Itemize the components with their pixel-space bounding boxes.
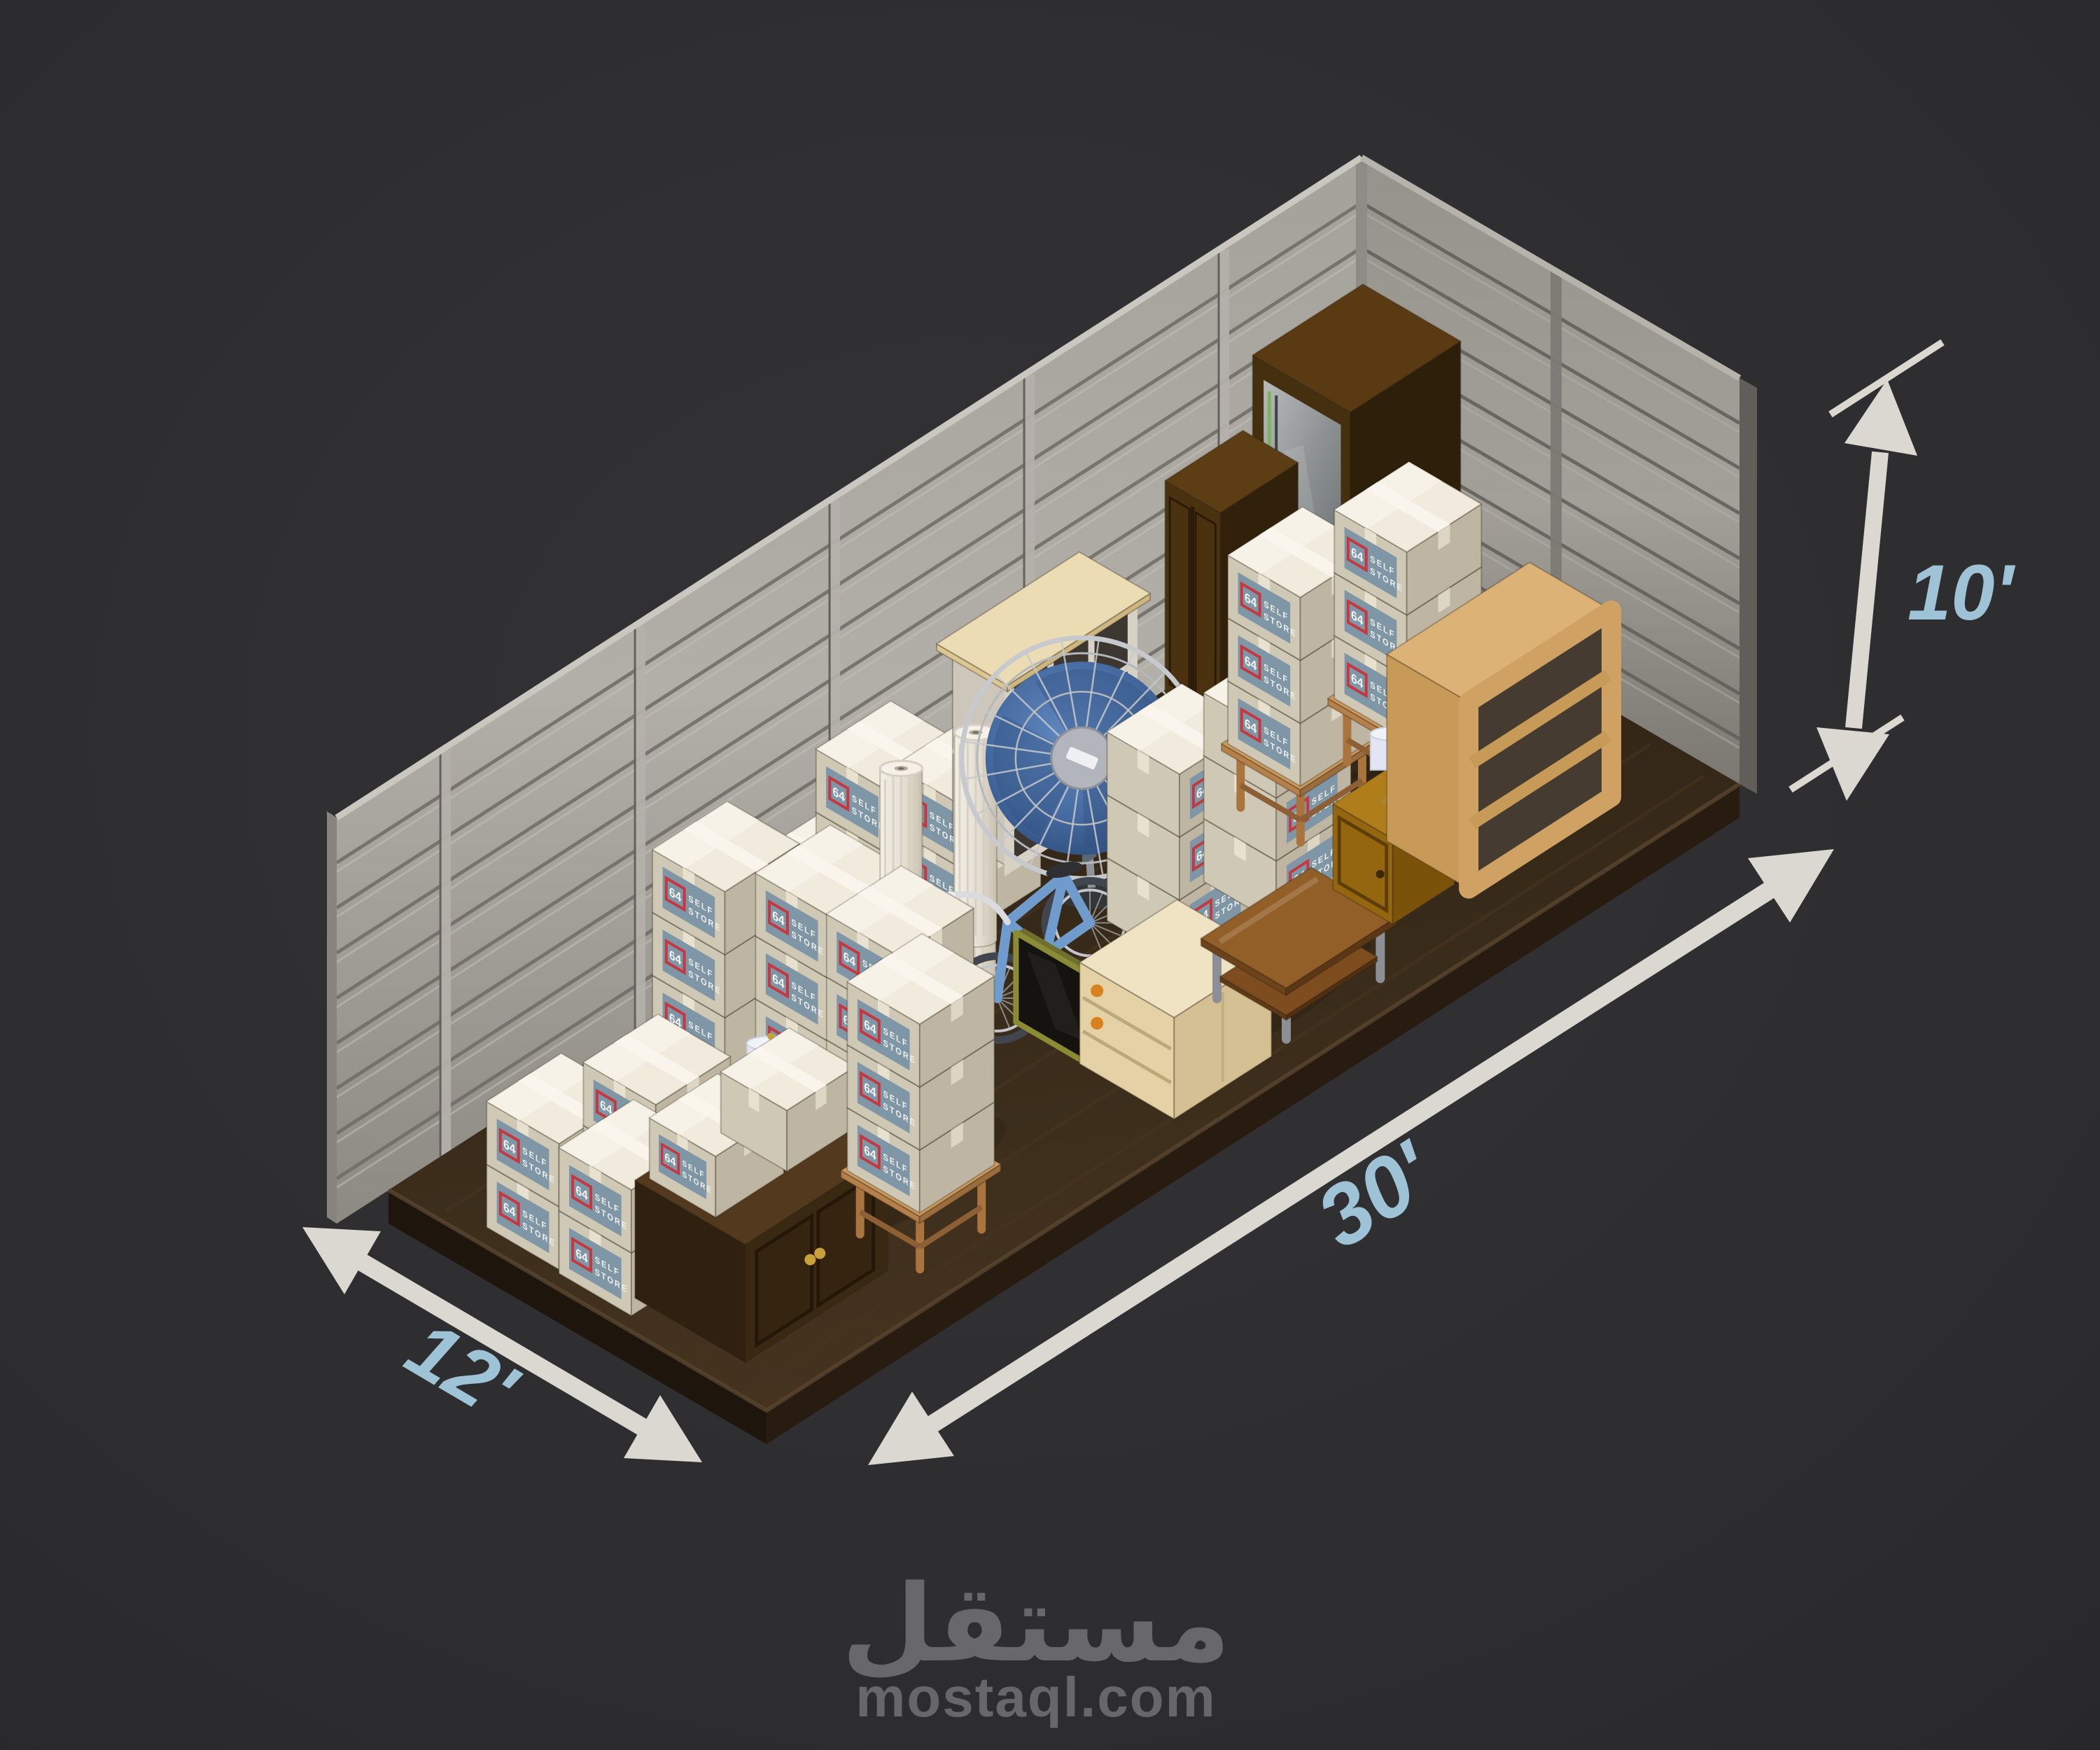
render-canvas: 64 SELF STORE 10' 30' 12' مستقل mostaql.… [0,0,2100,1750]
watermark: مستقل mostaql.com [841,1564,1231,1728]
watermark-domain: mostaql.com [855,1666,1216,1728]
height-dimension-label: 10' [1907,549,2016,636]
storage-unit-3d-illustration: 64 SELF STORE 10' 30' 12' مستقل mostaql.… [0,0,2100,1750]
